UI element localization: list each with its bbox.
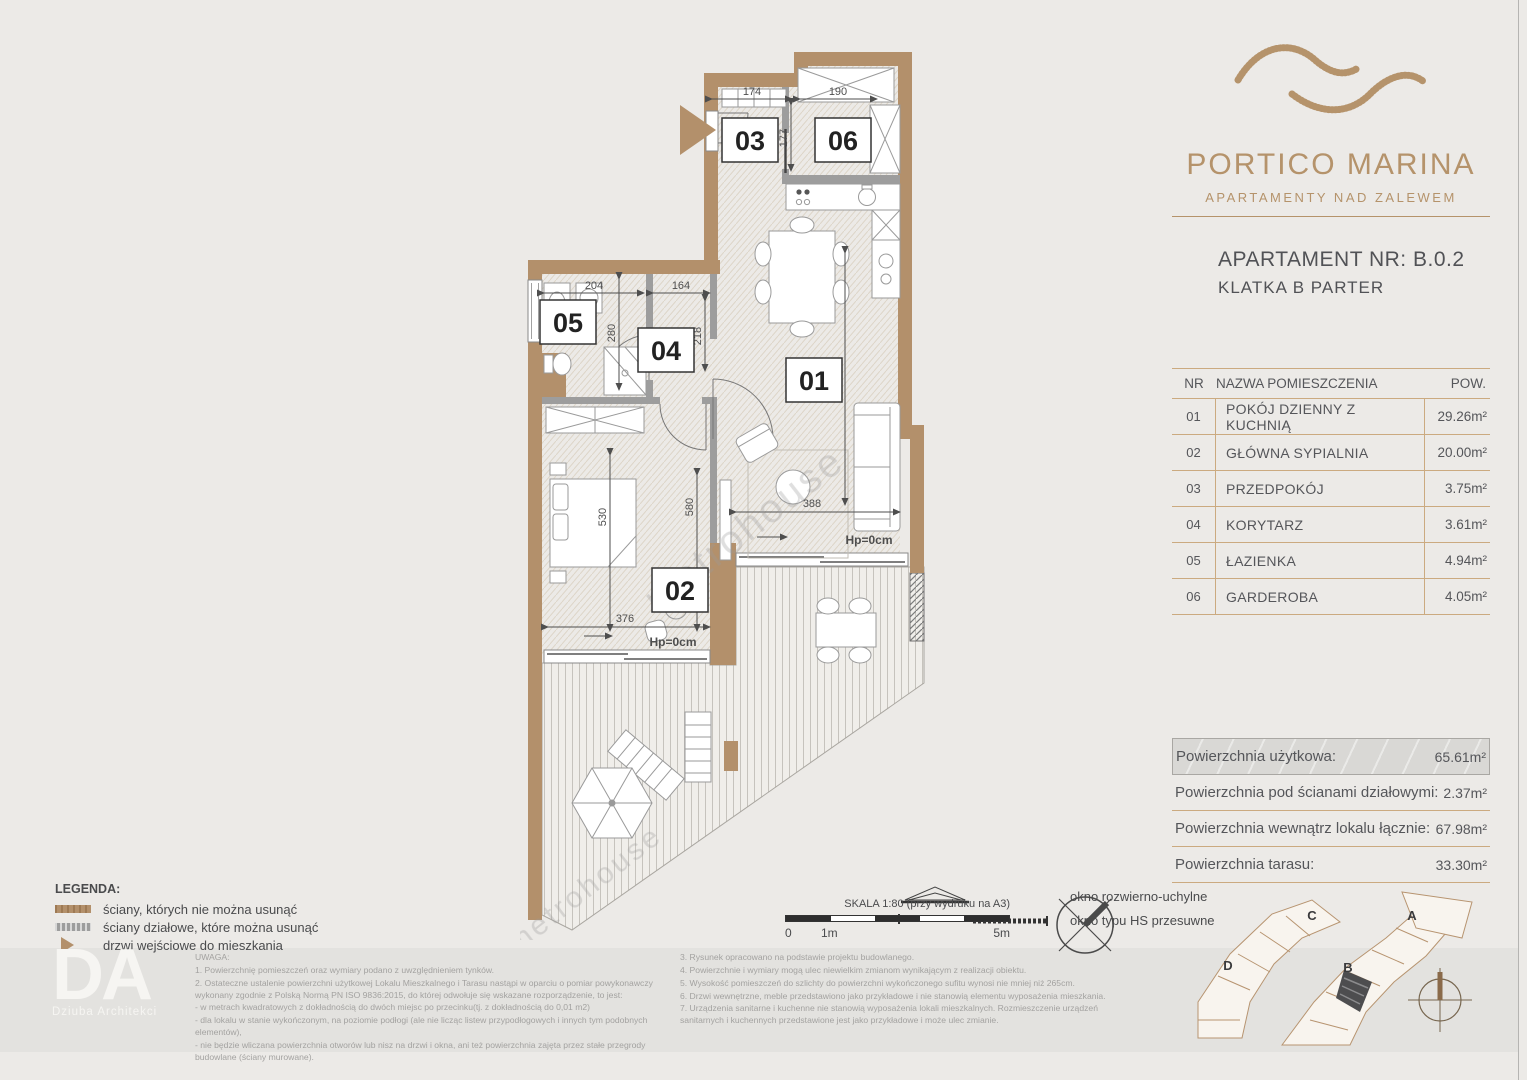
scale-tick-5m: 5m: [993, 926, 1010, 940]
notes-column-2: 3. Rysunek opracowano na podstawie proje…: [680, 952, 1128, 1028]
dim-580: 580: [684, 498, 696, 516]
summary-label: Powierzchnia pod ścianami działowymi:: [1175, 784, 1438, 801]
site-label-b: B: [1343, 960, 1352, 975]
note-line: - w metrach kwadratowych z dokładnością …: [195, 1002, 673, 1014]
dim-177: 177: [778, 129, 790, 147]
architect-name: Dziuba Architekci: [52, 1006, 157, 1018]
hp-label-bedroom: Hp=0cm: [649, 635, 696, 649]
dim-280: 280: [606, 324, 618, 342]
note-line: 2. Ostateczne ustalenie powierzchni użyt…: [195, 978, 673, 1002]
summary-value: 2.37m²: [1443, 785, 1487, 801]
table-row: 03 PRZEDPOKÓJ 3.75m²: [1172, 470, 1490, 506]
room-name: GARDEROBA: [1216, 589, 1424, 605]
dim-164: 164: [672, 280, 690, 292]
summary-label: Powierzchnia tarasu:: [1175, 856, 1314, 873]
brand-name: PORTICO MARINA: [1172, 148, 1490, 182]
svg-text:03: 03: [735, 126, 765, 156]
room-nr: 04: [1172, 507, 1216, 542]
room-label-01: 01: [786, 358, 842, 402]
notes-title: UWAGA:: [195, 952, 673, 964]
room-name: GŁÓWNA SYPIALNIA: [1216, 445, 1424, 461]
room-nr: 03: [1172, 471, 1216, 506]
room-area: 3.61m²: [1424, 507, 1490, 542]
room-name: PRZEDPOKÓJ: [1216, 481, 1424, 497]
svg-text:02: 02: [665, 576, 695, 606]
note-line: 1. Powierzchnię pomieszczeń oraz wymiary…: [195, 965, 673, 977]
scale-label: SKALA 1:80 (przy wydruku na A3): [844, 898, 1010, 910]
partition-swatch-icon: [55, 923, 91, 931]
legend-title: LEGENDA:: [55, 882, 318, 896]
room-area: 29.26m²: [1424, 399, 1490, 434]
page-edge-divider: [1518, 0, 1519, 1080]
room-name: ŁAZIENKA: [1216, 553, 1424, 569]
table-row: 01 POKÓJ DZIENNY Z KUCHNIĄ 29.26m²: [1172, 398, 1490, 434]
architect-logo: DA Dziuba Architekci: [52, 940, 157, 1018]
wall-swatch-icon: [55, 905, 91, 913]
floor-plan-drawing: 174 190 177 204 164 280 218 806 530 580 …: [520, 35, 935, 940]
brand-tagline: APARTAMENTY NAD ZALEWEM: [1172, 190, 1490, 205]
room-name: POKÓJ DZIENNY Z KUCHNIĄ: [1216, 401, 1424, 433]
floorplan-sheet: 174 190 177 204 164 280 218 806 530 580 …: [0, 0, 1527, 1080]
room-area: 4.05m²: [1424, 579, 1490, 614]
brand-divider: [1172, 216, 1490, 217]
note-line: 5. Wysokość pomieszczeń do szlichty do p…: [680, 978, 1128, 990]
col-header-area: POW.: [1430, 376, 1490, 391]
room-label-03: 03: [722, 118, 778, 162]
terrace-divider-hatch: [910, 573, 924, 641]
svg-text:05: 05: [553, 308, 583, 338]
scale-bar-graphic: [785, 915, 1010, 922]
legend-item-label: ściany działowe, które można usunąć: [103, 920, 318, 935]
note-line: 3. Rysunek opracowano na podstawie proje…: [680, 952, 1128, 964]
room-area: 4.94m²: [1424, 543, 1490, 578]
dim-204: 204: [585, 280, 603, 292]
note-line: - nie będzie wliczana powierzchnia otwor…: [195, 1040, 673, 1064]
dim-174: 174: [743, 86, 761, 98]
room-nr: 01: [1172, 399, 1216, 434]
summary-row-usable: Powierzchnia użytkowa: 65.61m²: [1172, 738, 1490, 775]
summary-value: 65.61m²: [1435, 749, 1486, 765]
living-sliding-window: [736, 553, 908, 566]
summary-label: Powierzchnia wewnątrz lokalu łącznie:: [1175, 820, 1430, 837]
room-name: KORYTARZ: [1216, 517, 1424, 533]
summary-value: 33.30m²: [1436, 857, 1487, 873]
note-line: 7. Urządzenia sanitarne i kuchenne nie s…: [680, 1003, 1128, 1027]
bed: [550, 463, 636, 583]
summary-value: 67.98m²: [1436, 821, 1487, 837]
room-label-05: 05: [540, 300, 596, 344]
scale-tick-1m: 1m: [821, 926, 838, 940]
table-row: 05 ŁAZIENKA 4.94m²: [1172, 542, 1490, 578]
site-label-a: A: [1407, 908, 1417, 923]
table-row: 06 GARDEROBA 4.05m²: [1172, 578, 1490, 614]
room-label-06: 06: [815, 118, 871, 162]
table-row: 04 KORYTARZ 3.61m²: [1172, 506, 1490, 542]
legend-item-label: ściany, których nie można usunąć: [103, 902, 297, 917]
room-nr: 06: [1172, 579, 1216, 614]
bedroom-sliding-window: [544, 650, 710, 663]
summary-row-partitions: Powierzchnia pod ścianami działowymi: 2.…: [1172, 775, 1490, 811]
table-row: 02 GŁÓWNA SYPIALNIA 20.00m²: [1172, 434, 1490, 470]
hp-label-living: Hp=0cm: [845, 533, 892, 547]
room-area: 3.75m²: [1424, 471, 1490, 506]
room-area: 20.00m²: [1424, 435, 1490, 470]
room-label-04: 04: [638, 328, 694, 372]
rooms-table-header: NR NAZWA POMIESZCZENIA POW.: [1172, 369, 1490, 398]
notes-column-1: UWAGA: 1. Powierzchnię pomieszczeń oraz …: [195, 952, 673, 1065]
site-compass: [1408, 968, 1472, 1032]
room-nr: 02: [1172, 435, 1216, 470]
architect-initials: DA: [52, 940, 157, 1010]
dim-376: 376: [616, 613, 634, 625]
note-line: 6. Drzwi wewnętrzne, meble przedstawiono…: [680, 991, 1128, 1003]
note-line: 4. Powierzchnie i wymiary mogą ulec niew…: [680, 965, 1128, 977]
dining-table: [755, 217, 849, 337]
legend-item: ściany działowe, które można usunąć: [55, 918, 318, 936]
site-label-d: D: [1223, 958, 1232, 973]
legend-item: ściany, których nie można usunąć: [55, 900, 318, 918]
apartment-location: KLATKA B PARTER: [1218, 278, 1384, 298]
svg-text:04: 04: [651, 336, 681, 366]
brand-waves-logo: [1230, 22, 1430, 132]
note-line: - dla lokalu w stanie wykończonym, na po…: [195, 1015, 673, 1039]
svg-text:06: 06: [828, 126, 858, 156]
apartment-number: APARTAMENT NR: B.0.2: [1218, 248, 1465, 272]
col-header-name: NAZWA POMIESZCZENIA: [1216, 376, 1430, 391]
svg-text:01: 01: [799, 366, 829, 396]
site-label-c: C: [1307, 908, 1317, 923]
room-nr: 05: [1172, 543, 1216, 578]
site-plan: C A D B: [1190, 880, 1490, 1065]
area-summary: Powierzchnia użytkowa: 65.61m² Powierzch…: [1172, 738, 1490, 883]
rooms-table: NR NAZWA POMIESZCZENIA POW. 01 POKÓJ DZI…: [1172, 368, 1490, 615]
dim-530: 530: [597, 508, 609, 526]
room-label-02: 02: [652, 568, 708, 612]
summary-row-terrace: Powierzchnia tarasu: 33.30m²: [1172, 847, 1490, 883]
summary-label: Powierzchnia użytkowa:: [1176, 748, 1336, 765]
summary-row-internal: Powierzchnia wewnątrz lokalu łącznie: 67…: [1172, 811, 1490, 847]
dim-190: 190: [829, 86, 847, 98]
scale-tick-0: 0: [785, 926, 792, 940]
col-header-nr: NR: [1172, 376, 1216, 391]
